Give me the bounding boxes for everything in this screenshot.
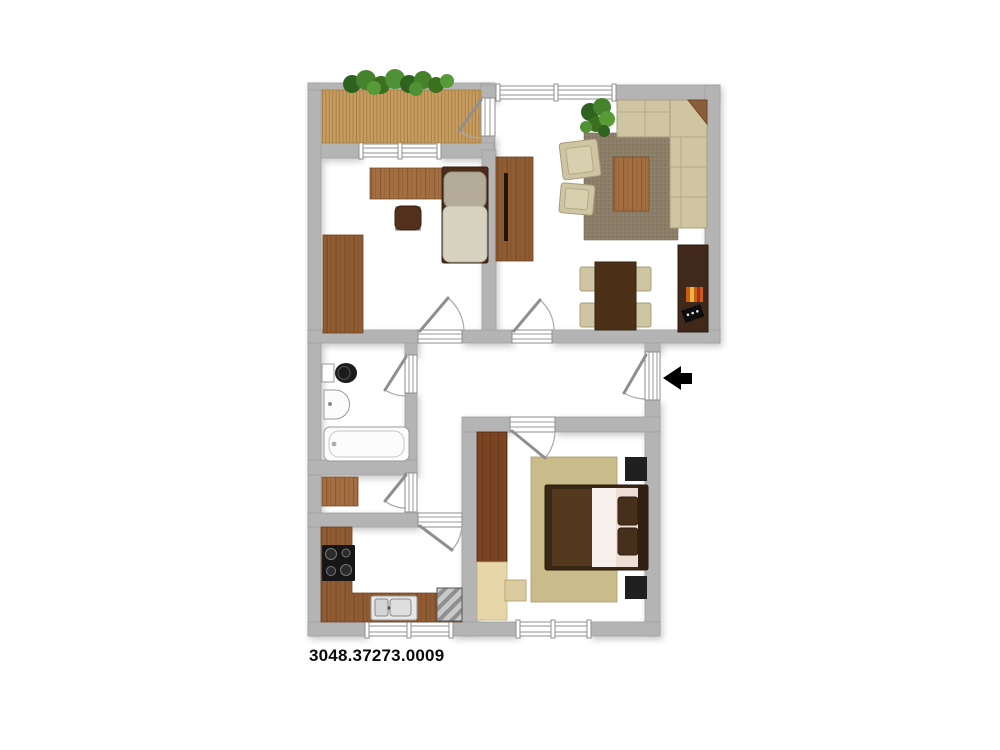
plant xyxy=(580,98,615,137)
living-window xyxy=(496,84,616,101)
nightstand-top xyxy=(625,457,647,481)
office-chair xyxy=(395,206,421,231)
outer-wall-left xyxy=(308,83,321,636)
study-window xyxy=(359,142,441,159)
bedroom-wall-left xyxy=(462,432,477,636)
plan-number-label: 3048.37273.0009 xyxy=(309,646,444,666)
outer-wall-bottom-left xyxy=(308,622,366,636)
armchair-2 xyxy=(559,183,595,216)
floor-plan-page: 3048.37273.0009 xyxy=(0,0,1000,750)
study-room xyxy=(323,167,488,333)
dining-chair xyxy=(580,267,596,291)
bedroom-wall-top-right xyxy=(555,417,660,432)
outer-wall-bottom-right xyxy=(590,622,660,636)
living-room xyxy=(496,98,708,332)
outer-wall-bottom-center xyxy=(452,622,517,636)
balcony-deck xyxy=(322,90,481,143)
bed-pillow xyxy=(618,497,638,525)
kitchen-window xyxy=(365,620,453,638)
entrance-arrow xyxy=(663,366,692,390)
floor-plan-drawing xyxy=(0,0,1000,750)
headboard xyxy=(638,485,648,570)
bedroom-wall-top-left xyxy=(462,417,510,432)
stove xyxy=(322,545,355,581)
bathtub xyxy=(324,427,409,461)
dining-chair xyxy=(635,267,651,291)
bed-pillow xyxy=(444,172,486,208)
sideboard xyxy=(678,245,708,332)
kitchen-door xyxy=(418,513,462,550)
dining-table xyxy=(595,262,636,330)
dining-chair xyxy=(580,303,596,327)
bed-sheet xyxy=(592,488,618,567)
bed-pillow xyxy=(618,528,638,555)
bed-duvet xyxy=(552,489,592,566)
entrance-door xyxy=(624,352,660,400)
bedroom xyxy=(477,432,648,620)
armchair-1 xyxy=(559,139,601,180)
bedroom-door xyxy=(510,417,555,458)
mid-wall-center xyxy=(462,330,512,343)
cabinet-handle xyxy=(504,173,508,241)
bed-duvet xyxy=(443,206,487,262)
study-wardrobe xyxy=(323,235,363,333)
living-wall-top-right xyxy=(616,85,720,100)
nightstand-bottom xyxy=(625,576,647,599)
storage-door xyxy=(385,473,417,512)
storage-room xyxy=(322,477,358,506)
bedroom-window xyxy=(516,620,591,638)
kitchen-wall-top xyxy=(308,513,418,527)
refrigerator xyxy=(437,588,462,621)
bathroom xyxy=(322,363,409,461)
entry-wall-upper xyxy=(645,343,660,352)
bathroom-wall-right-upper xyxy=(405,343,417,355)
study-wall-top-left xyxy=(321,143,360,158)
decor-picture xyxy=(686,287,703,302)
desk xyxy=(370,168,445,199)
toilet xyxy=(322,363,357,383)
tall-cabinet xyxy=(496,157,533,261)
living-door xyxy=(512,300,554,343)
storage-cabinet xyxy=(322,477,358,506)
single-bed xyxy=(442,167,488,263)
study-door xyxy=(418,298,464,343)
kitchen-sink xyxy=(371,596,417,620)
washbasin xyxy=(324,390,350,419)
dining-chair xyxy=(635,303,651,327)
dining-set xyxy=(580,262,651,330)
bathroom-door xyxy=(385,355,417,396)
balcony xyxy=(322,69,481,143)
bedroom-wardrobe xyxy=(477,432,526,620)
coffee-table xyxy=(613,157,649,211)
double-bed xyxy=(545,485,648,570)
wardrobe-side-unit xyxy=(505,580,526,601)
bathroom-wall-bottom xyxy=(308,460,417,475)
